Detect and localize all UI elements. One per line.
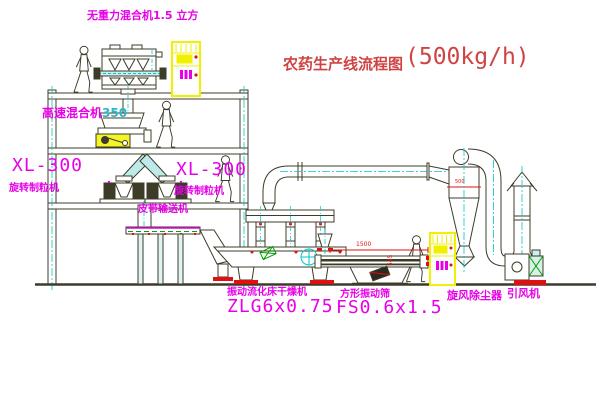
label-belt-conveyor: 皮带输送机: [138, 205, 188, 215]
label-granulator-right-model: XL-300: [176, 161, 247, 179]
control-cabinet-icon: [430, 233, 455, 285]
cad-flow-diagram: 农药生产线流程图 (500kg/h) 无重力混合机1.5 立方 高速混合机350…: [0, 0, 600, 403]
label-gravity-mixer: 无重力混合机1.5 立方: [87, 10, 198, 21]
label-sieve-model: FS0.6x1.5: [336, 299, 443, 317]
title-capacity: (500kg/h): [405, 44, 530, 70]
granulator-left-drawing: [100, 176, 148, 203]
label-high-speed-mixer-name: 高速混合机: [42, 106, 102, 120]
dim-sieve-length: 1500: [356, 242, 371, 248]
dim-sieve-height: 545: [388, 255, 394, 266]
label-high-speed-mixer: 高速混合机350: [42, 107, 127, 119]
label-granulator-left-model: XL-300: [12, 157, 83, 175]
label-high-speed-mixer-size: 350: [102, 106, 127, 120]
title-text: 农药生产线流程图: [283, 53, 403, 74]
belt-conveyor-drawing: [126, 227, 200, 284]
person-icon: [156, 101, 175, 147]
label-granulator-left-name: 旋转制粒机: [9, 184, 59, 194]
diagram-title: 农药生产线流程图 (500kg/h): [283, 44, 530, 74]
exhaust-duct-drawing: [263, 162, 449, 203]
label-granulator-right-name: 旋转制粒机: [174, 187, 224, 197]
label-cyclone: 旋风除尘器: [447, 290, 502, 301]
person-icon: [74, 46, 93, 92]
label-fan: 引风机: [507, 288, 540, 299]
label-dryer-model: ZLG6x0.75: [227, 298, 334, 316]
dim-cyclone: 500: [455, 180, 465, 185]
control-cabinet-icon: [172, 42, 200, 96]
fan-drawing: [505, 250, 546, 285]
